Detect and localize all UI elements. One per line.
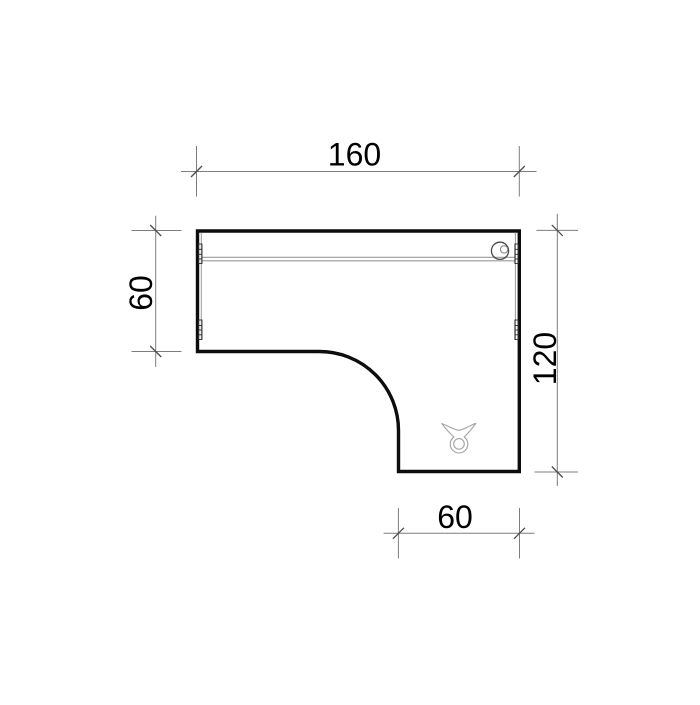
svg-text:60: 60 [123, 275, 159, 311]
svg-text:60: 60 [437, 499, 473, 535]
svg-text:160: 160 [328, 137, 381, 173]
svg-text:120: 120 [527, 332, 563, 385]
